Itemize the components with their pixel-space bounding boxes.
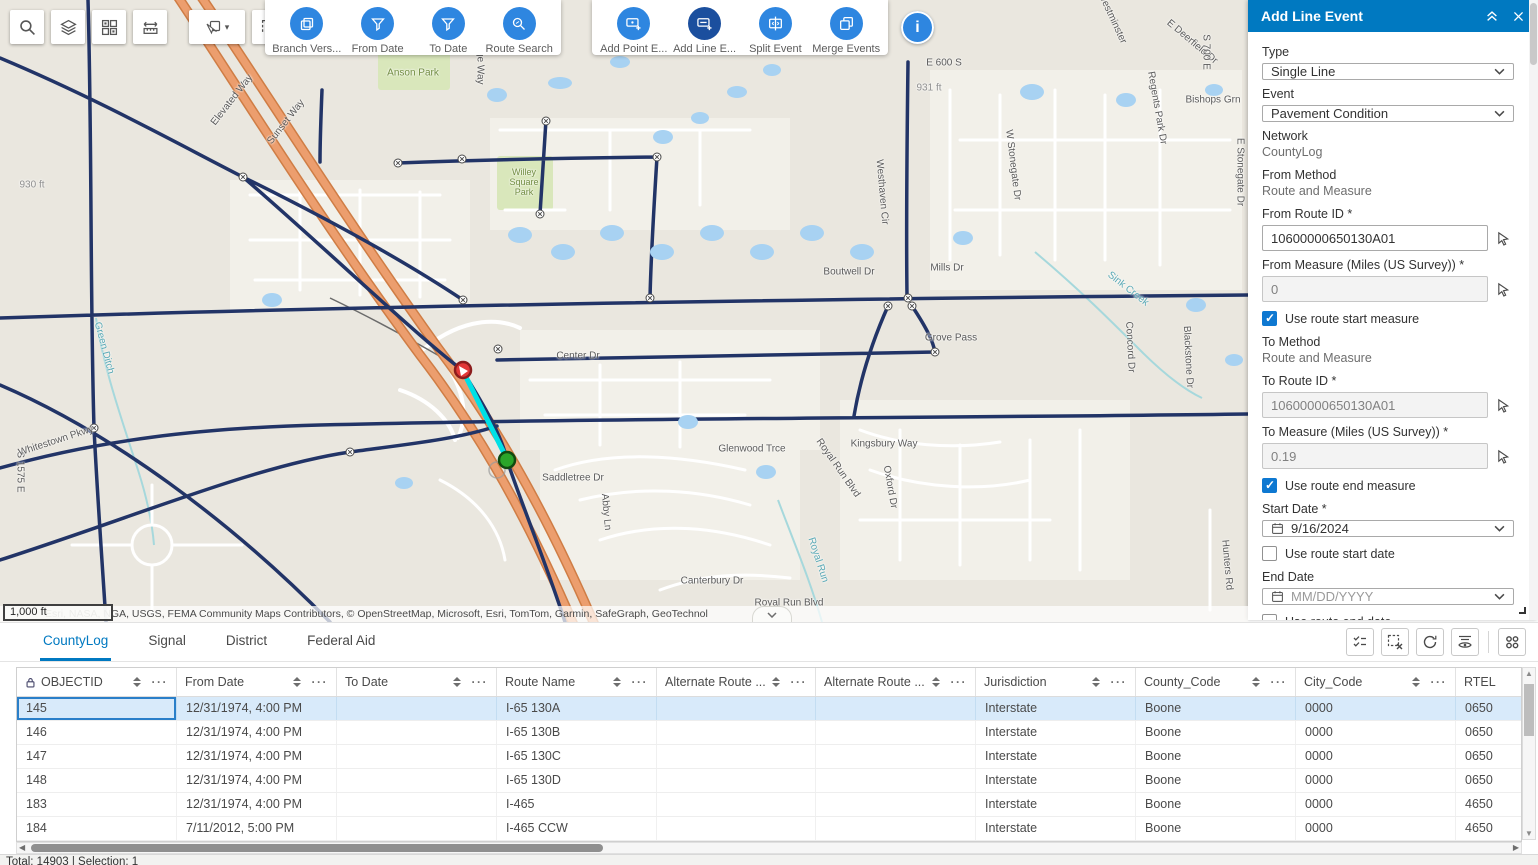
tool-label: Add Point E... [600,43,667,55]
basemap-grid-icon[interactable] [92,10,126,44]
from-route-id-input[interactable] [1262,225,1488,251]
select-icon [205,19,221,35]
tab-countylog[interactable]: CountyLog [40,623,111,661]
table-cell[interactable] [816,697,976,720]
table-cell[interactable]: 12/31/1974, 4:00 PM [177,697,337,720]
use-route-start-date-checkbox[interactable]: Use route start date [1262,546,1514,561]
tool-label: Add Line E... [673,43,736,55]
sort-icon[interactable] [1092,677,1100,687]
table-cell[interactable]: Boone [1136,721,1296,744]
event-label: Event [1262,87,1514,101]
table-tabs-bar: CountyLog Signal District Federal Aid [0,623,1538,662]
table-row[interactable]: 14612/31/1974, 4:00 PMI-65 130BInterstat… [17,721,1521,745]
table-header-row: OBJECTIDFrom DateTo DateRoute NameAltern… [17,668,1521,697]
attribution-collapse-tab[interactable] [752,606,792,622]
start-date-label: Start Date * [1262,502,1514,516]
table-cell[interactable]: 0000 [1296,697,1456,720]
lock-icon [25,677,36,688]
table-cell[interactable]: 0000 [1296,745,1456,768]
collapse-icon[interactable] [1482,6,1502,26]
split-event-icon [759,7,792,40]
checkbox-checked-icon[interactable] [1262,311,1277,326]
end-date-placeholder: MM/DD/YYYY [1291,589,1494,604]
table-cell[interactable]: 0650 [1456,745,1523,768]
sort-icon[interactable] [133,677,141,687]
add-line-event-icon [688,7,721,40]
panel-header: Add Line Event [1248,0,1538,32]
table-cell[interactable]: I-65 130A [497,697,657,720]
calendar-icon [1271,590,1284,603]
refresh-icon[interactable] [1416,628,1444,656]
table-cell[interactable]: 0000 [1296,817,1456,840]
table-status-bar: Total: 14903 | Selection: 1 [0,854,1538,865]
table-cell[interactable]: 183 [17,793,177,816]
table-cell[interactable]: 4650 [1456,793,1523,816]
add-line-event-button[interactable]: Add Line E... [670,7,740,55]
table-cell[interactable] [657,745,816,768]
table-cell[interactable]: 12/31/1974, 4:00 PM [177,745,337,768]
to-date-filter-icon [432,7,465,40]
pick-on-map-icon[interactable] [1496,447,1514,465]
column-header[interactable]: OBJECTID [17,668,177,696]
table-cell[interactable]: 7/11/2012, 5:00 PM [177,817,337,840]
table-cell[interactable]: 12/31/1974, 4:00 PM [177,769,337,792]
from-method-label: From Method [1262,168,1514,182]
to-method-value: Route and Measure [1262,351,1514,365]
column-menu-icon[interactable] [791,675,808,689]
table-cell[interactable] [657,697,816,720]
attribute-table: OBJECTIDFrom DateTo DateRoute NameAltern… [16,667,1522,842]
table-cell[interactable]: 0650 [1456,769,1523,792]
event-select[interactable]: Pavement Condition [1262,105,1514,122]
column-menu-icon[interactable] [312,675,329,689]
network-value: CountyLog [1262,145,1514,159]
to-route-id-input[interactable] [1262,392,1488,418]
column-menu-icon[interactable] [152,675,169,689]
table-cell[interactable]: I-465 CCW [497,817,657,840]
column-header[interactable]: RTEL [1456,668,1523,696]
top-region: Elevated WaySunset WayAnson ParkWilleySq… [0,0,1538,622]
table-cell[interactable]: 12/31/1974, 4:00 PM [177,721,337,744]
sort-icon[interactable] [293,677,301,687]
type-value: Single Line [1271,64,1494,79]
to-measure-input[interactable] [1262,443,1488,469]
scrollbar-thumb[interactable] [1524,684,1534,736]
chevron-down-icon [1494,593,1505,600]
use-route-end-date-checkbox[interactable]: Use route end date [1262,614,1514,620]
layers-icon[interactable] [51,10,85,44]
table-cell[interactable]: I-465 [497,793,657,816]
map-canvas[interactable] [0,0,1248,622]
merge-events-icon [830,7,863,40]
checkbox-unchecked-icon[interactable] [1262,614,1277,620]
sync-visibility-icon[interactable] [1451,628,1479,656]
merge-events-button[interactable]: Merge Events [811,7,881,55]
clear-selection-icon[interactable] [1381,628,1409,656]
from-route-id-label: From Route ID * [1262,207,1514,221]
column-header[interactable]: Route Name [497,668,657,696]
column-menu-icon[interactable] [1111,675,1128,689]
event-value: Pavement Condition [1271,106,1494,121]
table-vertical-scrollbar[interactable]: ▲ ▼ [1522,667,1536,840]
column-header[interactable]: From Date [177,668,337,696]
split-event-button[interactable]: Split Event [740,7,810,55]
column-menu-icon[interactable] [951,675,968,689]
sort-icon[interactable] [932,677,940,687]
event-toolbar-editing: Add Point E... Add Line E... Split Event… [592,0,888,55]
column-menu-icon[interactable] [1271,675,1288,689]
tool-label: Branch Vers... [272,43,341,55]
table-cell[interactable] [337,745,497,768]
checkbox-unchecked-icon[interactable] [1262,546,1277,561]
table-area: OBJECTIDFrom DateTo DateRoute NameAltern… [16,667,1538,842]
scrollbar-thumb[interactable] [1530,3,1537,65]
info-icon[interactable]: i [901,11,934,44]
table-cell[interactable]: Interstate [976,721,1136,744]
table-cell[interactable]: I-65 130C [497,745,657,768]
scrollbar-thumb[interactable] [31,844,603,852]
table-cell[interactable]: 147 [17,745,177,768]
panel-title: Add Line Event [1261,8,1476,24]
panel-resize-handle[interactable] [1519,607,1526,614]
calendar-icon [1271,522,1284,535]
use-route-end-measure-checkbox[interactable]: Use route end measure [1262,478,1514,493]
chevron-down-icon [1494,68,1505,75]
column-header[interactable]: County_Code [1136,668,1296,696]
from-measure-marker[interactable] [455,362,471,378]
table-cell[interactable]: 4650 [1456,817,1523,840]
chevron-down-icon [767,612,777,618]
table-cell[interactable] [816,745,976,768]
route-search-icon [503,7,536,40]
tab-federal-aid[interactable]: Federal Aid [304,623,378,661]
route-search-button[interactable]: Route Search [484,7,554,55]
use-route-start-measure-checkbox[interactable]: Use route start measure [1262,311,1514,326]
select-tool[interactable]: ▾ [189,10,245,44]
to-measure-label: To Measure (Miles (US Survey)) * [1262,425,1514,439]
table-cell[interactable]: 12/31/1974, 4:00 PM [177,793,337,816]
start-date-picker[interactable]: 9/16/2024 [1262,520,1514,537]
table-cell[interactable]: Interstate [976,745,1136,768]
tab-district[interactable]: District [223,623,270,661]
pick-on-map-icon[interactable] [1496,396,1514,414]
column-header[interactable]: Alternate Route ... [657,668,816,696]
from-measure-input[interactable] [1262,276,1488,302]
from-date-filter-icon [361,7,394,40]
table-cell[interactable]: Interstate [976,793,1136,816]
table-cell[interactable]: Boone [1136,817,1296,840]
column-header[interactable]: To Date [337,668,497,696]
column-header[interactable]: City_Code [1296,668,1456,696]
tool-label: Merge Events [812,43,880,55]
table-cell[interactable] [337,817,497,840]
sort-icon[interactable] [1252,677,1260,687]
table-row[interactable]: 18312/31/1974, 4:00 PMI-465InterstateBoo… [17,793,1521,817]
add-line-event-panel: Add Line Event Type Single Line Event Pa… [1248,0,1538,620]
column-menu-icon[interactable] [1431,675,1448,689]
checkbox-checked-icon[interactable] [1262,478,1277,493]
event-toolbar-primary: Branch Vers... From Date To Date Route S… [265,0,561,55]
table-row[interactable]: 1847/11/2012, 5:00 PMI-465 CCWInterstate… [17,817,1521,841]
panel-body: Type Single Line Event Pavement Conditio… [1248,32,1538,620]
panel-scrollbar[interactable] [1529,0,1538,620]
add-point-event-button[interactable]: Add Point E... [599,7,669,55]
sort-icon[interactable] [613,677,621,687]
table-cell[interactable] [657,793,816,816]
sort-icon[interactable] [453,677,461,687]
pick-on-map-icon[interactable] [1496,229,1514,247]
checkbox-label: Use route start measure [1285,312,1419,326]
checkbox-label: Use route end measure [1285,479,1416,493]
from-method-value: Route and Measure [1262,184,1514,198]
column-header[interactable]: Alternate Route ... [816,668,976,696]
options-grid-icon[interactable] [1498,628,1526,656]
table-cell[interactable]: 0000 [1296,769,1456,792]
table-cell[interactable] [337,769,497,792]
table-cell[interactable]: Interstate [976,697,1136,720]
pick-on-map-icon[interactable] [1496,280,1514,298]
table-cell[interactable]: 0000 [1296,793,1456,816]
to-measure-marker[interactable] [499,452,515,468]
table-cell[interactable] [816,721,976,744]
chevron-down-icon [1494,525,1505,532]
network-label: Network [1262,129,1514,143]
table-cell[interactable]: 0650 [1456,721,1523,744]
table-toolbar [1346,623,1538,661]
table-cell[interactable]: 184 [17,817,177,840]
type-select[interactable]: Single Line [1262,63,1514,80]
table-cell[interactable] [657,769,816,792]
chevron-down-icon [1494,110,1505,117]
table-cell[interactable]: 146 [17,721,177,744]
scroll-left-icon[interactable]: ◀ [19,843,25,853]
to-route-id-label: To Route ID * [1262,374,1514,388]
map[interactable]: Elevated WaySunset WayAnson ParkWilleySq… [0,0,1248,622]
scale-bar: 1,000 ft [3,604,113,621]
measure-icon[interactable] [133,10,167,44]
table-cell[interactable]: 0650 [1456,697,1523,720]
table-cell[interactable]: 145 [17,697,177,720]
end-date-picker[interactable]: MM/DD/YYYY [1262,588,1514,605]
table-cell[interactable] [337,697,497,720]
tab-signal[interactable]: Signal [145,623,189,661]
tool-label: From Date [352,43,404,55]
table-cell[interactable]: Boone [1136,697,1296,720]
branch-versions-icon [290,7,323,40]
sort-icon[interactable] [1412,677,1420,687]
table-cell[interactable]: Boone [1136,793,1296,816]
branch-versions-button[interactable]: Branch Vers... [272,7,342,55]
table-cell[interactable] [337,721,497,744]
table-cell[interactable]: Boone [1136,769,1296,792]
to-method-label: To Method [1262,335,1514,349]
checkbox-label: Use route end date [1285,615,1391,621]
table-body: 14512/31/1974, 4:00 PMI-65 130AInterstat… [17,697,1521,841]
checkbox-label: Use route start date [1285,547,1395,561]
show-selection-icon[interactable] [1346,628,1374,656]
scroll-right-icon[interactable]: ▶ [1513,843,1519,853]
close-icon[interactable] [1508,6,1528,26]
from-date-button[interactable]: From Date [343,7,413,55]
start-date-value: 9/16/2024 [1291,521,1494,536]
attribute-table-section: CountyLog Signal District Federal Aid [0,622,1538,865]
table-cell[interactable]: I-65 130D [497,769,657,792]
table-row[interactable]: 14812/31/1974, 4:00 PMI-65 130DInterstat… [17,769,1521,793]
table-cell[interactable] [816,817,976,840]
chevron-down-icon[interactable]: ▾ [225,22,230,33]
map-attribution: Esri, NASA, NGA, USGS, FEMA Community Ma… [0,606,1248,622]
table-cell[interactable]: 0000 [1296,721,1456,744]
tool-label: Split Event [749,43,802,55]
type-label: Type [1262,45,1514,59]
column-menu-icon[interactable] [632,675,649,689]
table-cell[interactable] [816,793,976,816]
scroll-down-icon[interactable]: ▼ [1525,829,1533,838]
toolbar-separator [1488,631,1489,653]
scroll-up-icon[interactable]: ▲ [1525,669,1533,678]
table-cell[interactable] [337,793,497,816]
table-cell[interactable] [657,721,816,744]
table-horizontal-scrollbar[interactable]: ◀ ▶ [16,842,1522,854]
add-point-event-icon [617,7,650,40]
table-row[interactable]: 14712/31/1974, 4:00 PMI-65 130CInterstat… [17,745,1521,769]
tool-label: To Date [429,43,467,55]
table-cell[interactable]: 148 [17,769,177,792]
table-cell[interactable]: Interstate [976,817,1136,840]
column-header[interactable]: Jurisdiction [976,668,1136,696]
table-row[interactable]: 14512/31/1974, 4:00 PMI-65 130AInterstat… [17,697,1521,721]
table-cell[interactable]: Interstate [976,769,1136,792]
table-cell[interactable]: I-65 130B [497,721,657,744]
end-date-label: End Date [1262,570,1514,584]
to-date-button[interactable]: To Date [413,7,483,55]
tool-label: Route Search [486,43,553,55]
table-cell[interactable] [816,769,976,792]
table-cell[interactable]: Boone [1136,745,1296,768]
from-measure-label: From Measure (Miles (US Survey)) * [1262,258,1514,272]
table-cell[interactable] [657,817,816,840]
search-icon[interactable] [10,10,44,44]
sort-icon[interactable] [772,677,780,687]
column-menu-icon[interactable] [472,675,489,689]
